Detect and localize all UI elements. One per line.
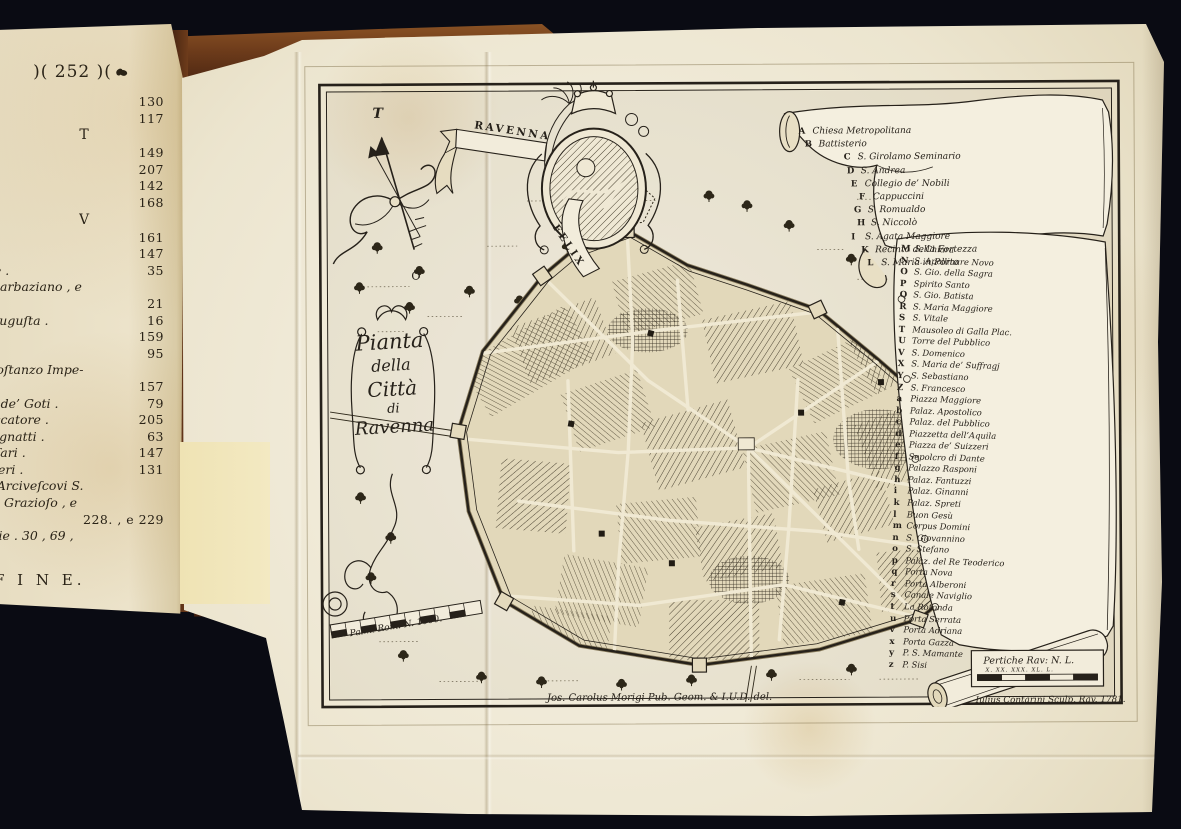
index-page-number: 228. , e 229 (83, 512, 168, 527)
legend-key: H (857, 218, 868, 231)
credit-engraver: Iulius Contarini Sculp. Rav. 1781. (976, 695, 1116, 706)
legend-name: Porta Adriana (903, 624, 962, 636)
index-page-number: 207 (139, 162, 168, 177)
index-entry-text: ro Traverſari . (0, 445, 26, 460)
legend-key: s (891, 590, 902, 601)
index-page-number: 147 (139, 246, 168, 261)
legend-name: Cappuccini (873, 192, 924, 202)
legend-key: f (895, 452, 906, 463)
index-page-number: 130 (139, 94, 168, 109)
index-entry-text: io , e di Coſtanzo Impe- (0, 362, 84, 377)
legend-name: Torre del Pubblico (912, 336, 990, 348)
map-title: PiantadellaCittàdiRavenna (337, 329, 447, 440)
legend-name: S. Andrea (861, 166, 906, 176)
index-entry-text: V (79, 212, 91, 228)
index-page-number: 159 (139, 329, 168, 344)
legend-name: Palaz. Spreti (907, 497, 961, 509)
index-line: T (0, 127, 168, 145)
legend-name: Piazza de’ Suizzeri (909, 440, 989, 452)
legend-name: Palaz. Apostolico (910, 405, 982, 417)
index-page-number: 205 (139, 412, 168, 427)
index-line: io , e di Coſtanzo Impe- (0, 362, 168, 379)
legend-key: x (889, 636, 900, 647)
legend-name: S. Maria Maggiore (913, 301, 993, 313)
legend-key: E (851, 178, 862, 191)
legend-entry: E Collegio de’ Nobili (851, 177, 977, 191)
legend-key: O (900, 267, 911, 278)
legend-name: P. S. Mamante (903, 647, 964, 659)
index-line: ria gentile . 35 (0, 263, 168, 280)
index-page-number: 149 (139, 145, 168, 160)
legend-key: i (894, 486, 905, 497)
index-line: rali degli Arciveſcovi S. (0, 478, 168, 495)
legend-entry: F Cappuccini (859, 191, 977, 205)
compass-north-label: T (372, 106, 383, 122)
index-line: 147 (0, 246, 168, 263)
legend-name: S. Giovannino (906, 532, 965, 544)
index-entry-text: Giovanni , Grazioſo , e (0, 495, 77, 510)
index-line: ſig. Ruggieri . 131 (0, 462, 168, 479)
legend-entry: G S. Romualdo (854, 204, 977, 218)
sheet-edge-shadow (1142, 22, 1168, 824)
index-line: V (0, 212, 168, 230)
scale-right-label: Pertiche Rav: N. L. (983, 655, 1074, 666)
legend-name: Porta Serrata (904, 613, 962, 625)
index-line: co . 149 (0, 145, 168, 162)
legend-key: n (892, 533, 903, 544)
legend-name: Canale Naviglio (904, 590, 972, 602)
legend-key: k (893, 498, 904, 509)
legend-key: D (847, 165, 858, 178)
legend-key: X (897, 359, 908, 370)
legend-name: S. Apollinare Novo (914, 255, 994, 267)
index-entry-text: ſig. Ruggieri . (0, 462, 23, 477)
legend-key: U (898, 336, 909, 347)
index-entry-text: Placidia Auguſta . (0, 313, 48, 328)
legend-key: P (900, 279, 911, 290)
index-entry-text: ria gentile . (0, 263, 9, 278)
legend-name: Porta Gazza (903, 636, 954, 648)
legend-lower: M S. Chiara N S. Apollinare Novo O S. Gi… (889, 243, 1015, 673)
legend-entry: A Chiesa Metropolitana (799, 125, 977, 139)
index-line: ro Traverſari . 147 (0, 445, 168, 462)
underlying-book-page (180, 442, 270, 604)
index-line: 157 (0, 379, 168, 396)
legend-key: v (890, 625, 901, 636)
legend-name: Chiesa Metropolitana (812, 126, 911, 137)
legend-name: Porta Alberoni (905, 578, 967, 590)
index-line: ſa . 117 (0, 111, 168, 128)
legend-key: r (891, 579, 902, 590)
legend-key: h (894, 475, 905, 486)
index-entry-text: T (79, 127, 90, 143)
legend-name: Corpus Domini (906, 520, 970, 532)
index-line: amiglia Pignatti . 63 (0, 429, 168, 446)
legend-key: Y (897, 371, 908, 382)
legend-name: S. Domenico (911, 347, 965, 359)
legend-name: S. Gio. Batista (913, 290, 973, 302)
photo-of-open-book: )( 252 )( 130 ſa . 117 T (0, 0, 1181, 829)
legend-name: Palazzo Rasponi (908, 463, 977, 475)
legend-key: Q (899, 290, 910, 301)
legend-name: S. Girolamo Seminario (858, 152, 961, 163)
legend-key: F (859, 191, 870, 204)
index-entry-text: Pietro Peccatore . (0, 412, 49, 427)
index-line: derico Re de’ Goti . 79 (0, 396, 168, 413)
index-line: 161 (0, 230, 168, 247)
credit-delineator: Jos. Carolus Morigi Pub. Geom. & I.U.D. … (510, 692, 810, 705)
legend-name: Sepolcro di Dante (908, 451, 985, 463)
legend-name: Palaz. Fantuzzi (908, 474, 972, 486)
page-number-header: )( 252 )( (0, 62, 160, 82)
legend-key: N (901, 256, 912, 267)
legend-key: q (891, 567, 902, 578)
legend-name: Collegio de’ Nobili (865, 179, 950, 189)
index-line: ne Famiglie . 30 , 69 , (0, 528, 168, 545)
legend-key: L (867, 257, 878, 270)
legend-key: Z (897, 383, 908, 394)
legend-key: m (893, 521, 904, 532)
legend-name: S. Gio. della Sagra (914, 267, 993, 279)
index-page-number: 147 (139, 445, 168, 460)
index-page-number: 168 (139, 195, 168, 210)
scale-right-ticks: X. XX. XXX. XL. L. (985, 667, 1053, 673)
legend-name: Buon Gesù (907, 509, 953, 520)
legend-name: S. Vitale (913, 313, 949, 324)
legend-name: Porta Nova (905, 567, 953, 578)
index-entry-text: amiglia Pignatti . (0, 429, 45, 444)
legend-name: S. Romualdo (868, 205, 926, 215)
index-line: Placidia Auguſta . 16 (0, 313, 168, 330)
legend-name: S. Agata Maggiore (865, 231, 950, 241)
index-page-number: 157 (139, 379, 168, 394)
index-line: ale di S. Barbaziano , e (0, 279, 168, 296)
legend-key: o (892, 544, 903, 555)
legend-name: S. Maria de’ Suffragj (911, 359, 1000, 372)
legend-key: e (895, 440, 906, 451)
legend-key: K (861, 244, 872, 257)
legend-name: S. Niccolò (871, 218, 917, 228)
index-entry-text: F I N E. (0, 571, 85, 589)
legend-key: M (901, 244, 912, 255)
index-entry-text: ne Famiglie . 30 , 69 , (0, 528, 74, 543)
index-line: inaldo . 21 (0, 296, 168, 313)
index-line: o fuori . 207 (0, 162, 168, 179)
legend-key: p (892, 556, 903, 567)
compass-south-label: O (411, 270, 420, 283)
index-page-number: 117 (139, 111, 168, 126)
index-line: F I N E. (0, 561, 168, 591)
legend-key: S (899, 313, 910, 324)
legend-name: Spirito Santo (914, 278, 970, 290)
legend-key: u (890, 613, 901, 624)
legend-name: S. Francesco (910, 382, 965, 394)
index-entry-text: ale di S. Barbaziano , e (0, 279, 82, 294)
legend-name: Piazzetta dell’Aquila (909, 428, 996, 441)
legend-key: B (805, 139, 816, 152)
legend-entry: B Battisterio (805, 138, 977, 152)
index-line: 130 (0, 94, 168, 111)
index-entry-text: rali degli Arciveſcovi S. (0, 478, 84, 493)
legend-name: Piazza Maggiore (910, 394, 981, 406)
legend-key: g (894, 463, 905, 474)
index-page-number: 161 (139, 230, 168, 245)
index-page-number: 16 (147, 313, 168, 328)
index-page-number: 95 (147, 346, 168, 361)
index-line: lico . 142 (0, 178, 168, 195)
index-entry-text: derico Re de’ Goti . (0, 396, 58, 411)
index-line: Pietro Peccatore . 205 (0, 412, 168, 429)
legend-key: a (896, 394, 907, 405)
map-title-line: Città (340, 376, 445, 402)
map-title-line: della (339, 355, 444, 377)
legend-key: z (889, 660, 900, 671)
legend-key: d (895, 429, 906, 440)
index-list: 130 ſa . 117 T co . 149 o fuo (0, 94, 168, 591)
legend-name: Palaz. Ginanni (907, 486, 968, 498)
index-page-number: 63 (147, 429, 168, 444)
fold-crease-horizontal (298, 754, 1158, 760)
legend-entry: D S. Andrea (847, 164, 977, 178)
legend-key: V (898, 348, 909, 359)
index-page-number: 142 (139, 178, 168, 193)
leaf-ornament-icon (116, 68, 127, 77)
legend-name: Palaz. del Re Teoderico (905, 555, 1004, 568)
legend-key: T (898, 325, 909, 336)
legend-name: S. Stefano (906, 544, 950, 555)
legend-entry: I S. Agata Maggiore (851, 230, 977, 244)
legend-key: l (893, 510, 904, 521)
page-number: )( 252 )( (33, 62, 112, 82)
index-page-number: 21 (147, 296, 168, 311)
legend-key: A (799, 126, 810, 139)
legend-key: I (851, 231, 862, 244)
index-line: Numai . 95 (0, 346, 168, 363)
legend-key: b (896, 406, 907, 417)
legend-name: Palaz. del Pubblico (909, 417, 989, 429)
index-line: e altrove . (0, 545, 168, 562)
legend-name: S. Chiara (915, 243, 955, 254)
legend-name: Battisterio (819, 139, 867, 149)
index-page-number: 131 (139, 462, 168, 477)
index-page-number: 35 (147, 263, 168, 278)
index-line: tuno . 168 (0, 195, 168, 212)
legend-entry: C S. Girolamo Seminario (844, 151, 977, 165)
legend-entry: H S. Niccolò (857, 217, 977, 231)
legend-name: S. Sebastiano (911, 370, 969, 382)
legend-key: C (844, 152, 855, 165)
legend-key: R (899, 302, 910, 313)
book-index-page: )( 252 )( 130 ſa . 117 T (0, 24, 184, 616)
map-title-line: Pianta (337, 329, 442, 356)
legend-key: y (889, 648, 900, 659)
legend-name: P. Sisi (902, 659, 927, 670)
legend-name: La Rotonda (904, 601, 953, 612)
index-line: o Eſarca . 159 (0, 329, 168, 346)
legend-key: t (890, 602, 901, 613)
engraved-map-plate: T O RAVENNA FELIX PiantadellaCittàdiRave… (316, 78, 1124, 710)
legend-key: c (896, 417, 907, 428)
fold-crease (294, 52, 302, 822)
legend-key: G (854, 204, 865, 217)
index-page-number: 79 (147, 396, 168, 411)
index-line: oro . 228. , e 229 (0, 512, 168, 529)
index-line: Giovanni , Grazioſo , e (0, 495, 168, 512)
